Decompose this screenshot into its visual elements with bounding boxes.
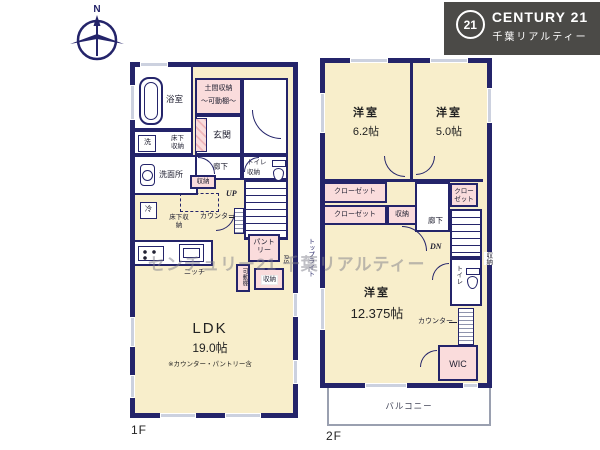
entry-porch [242, 78, 288, 155]
ldk-note-label: ※カウンター・パントリー含 [150, 358, 270, 368]
bedroom2-size-label: 5.0帖 [413, 123, 485, 139]
century21-badge-icon: 21 [456, 10, 485, 39]
floorplan-image: N 21 CENTURY 21 千葉リアルティー 浴室 洗 床下収納 [0, 0, 600, 450]
room-bedroom3: 洋室 12.375帖 [332, 284, 422, 322]
floor1-plan: 浴室 洗 床下収納 洗面所 土間収納 ～可動棚～ 玄関 [130, 62, 298, 418]
room-bedroom1: 洋室 6.2帖 [324, 104, 408, 139]
window [130, 317, 135, 347]
floor1-label: 1F [131, 423, 147, 437]
counter-label-2f: カウンター [418, 318, 453, 326]
bedroom1-size-label: 6.2帖 [324, 123, 408, 139]
window [225, 413, 261, 418]
bathtub-inner [144, 82, 158, 120]
window [463, 383, 478, 388]
room-entrance-label: 玄関 [213, 130, 231, 141]
closet-a-label: クローゼット [325, 188, 385, 196]
window [130, 375, 135, 398]
sink-bowl [142, 170, 153, 181]
compass-icon: N [62, 6, 132, 64]
bedroom1-door-arc [384, 156, 405, 177]
wic-label: WIC [440, 359, 476, 370]
window [160, 413, 196, 418]
washer-label: 洗 [144, 139, 151, 147]
window [350, 58, 388, 63]
brand-name: CENTURY 21 [492, 9, 588, 25]
floor2-label: 2F [326, 429, 342, 443]
room-closet-b: クローゼット [323, 205, 387, 225]
stairs-up-label: UP [226, 189, 237, 199]
room-laundry: 洗 床下収納 [133, 130, 193, 155]
stairs-1f [244, 180, 288, 240]
counter-pointer-2f [449, 322, 457, 323]
window [320, 288, 325, 330]
toilet-door-arc-2f [432, 263, 449, 280]
balcony: バルコニー [327, 388, 491, 426]
closet-c-label: クローゼット [454, 188, 474, 204]
toilet-tank [272, 160, 286, 167]
bedroom3-name-label: 洋室 [332, 284, 422, 300]
sink-icon [140, 164, 155, 186]
room-center-storage: 収納 [387, 205, 417, 225]
toilet-2f-label: トイレ [454, 265, 462, 285]
brand-text-block: CENTURY 21 千葉リアルティー [492, 9, 588, 43]
bedroom3-size-label: 12.375帖 [332, 303, 422, 322]
underfloor-storage-a-label: 床下収納 [171, 135, 187, 151]
room-wic: WIC [438, 345, 478, 381]
window [293, 293, 298, 317]
bedroom2-door-arc [416, 156, 435, 175]
underfloor-hatch-box [180, 193, 219, 212]
floor2-plan: 洋室 6.2帖 洋室 5.0帖 クローゼット クローゼット 収納 廊下 クローゼ… [320, 58, 492, 388]
room-bathroom-label: 浴室 [166, 94, 183, 104]
window [430, 58, 468, 63]
hallway-1f-label: 廊下 [213, 162, 228, 171]
room-washroom-label: 洗面所 [159, 170, 183, 180]
doma-shelf-label: ～可動棚～ [197, 98, 240, 106]
counter-hatch-1f [234, 208, 244, 234]
brand-subtitle: 千葉リアルティー [492, 28, 587, 43]
entrance-door-arc [252, 110, 281, 139]
bathtub-icon [139, 77, 163, 125]
wall-segment [323, 179, 483, 182]
compass-north-label: N [93, 4, 100, 15]
hall-storage-label: 収納 [192, 178, 214, 186]
doma-storage-label: 土間収納 [197, 85, 240, 93]
wic-door-arc [420, 350, 437, 367]
bedroom1-name-label: 洋室 [324, 104, 408, 120]
watermark: センチュリー21 千葉リアルティー [148, 250, 425, 275]
hallway-2f-label: 廊下 [428, 216, 443, 225]
stairs-down-label: DN [430, 242, 442, 252]
side-storage-label: 収納 [484, 252, 492, 265]
room-bathroom: 浴室 [133, 65, 193, 130]
room-hall-storage: 収納 [190, 175, 216, 189]
toilet-icon-2f [466, 268, 478, 289]
room-closet-c: クローゼット [450, 183, 478, 207]
window [487, 88, 492, 123]
fridge-label: 冷 [145, 206, 152, 214]
room-bedroom2: 洋室 5.0帖 [413, 104, 485, 139]
window [130, 85, 135, 120]
room-ldk: LDK 19.0帖 ※カウンター・パントリー含 [150, 320, 270, 368]
window [293, 360, 298, 384]
room-doma-storage: 土間収納 ～可動棚～ [195, 78, 242, 115]
window [365, 383, 407, 388]
ldk-size-label: 19.0帖 [150, 339, 270, 356]
toilet-icon-1f [272, 160, 284, 181]
room-toilet-2f: トイレ [450, 258, 482, 306]
counter-pointer-1f [229, 217, 235, 218]
stairs-2f [450, 209, 482, 258]
underfloor-storage-b-label: 床下収納 [168, 214, 190, 230]
bedroom2-name-label: 洋室 [413, 104, 485, 120]
counter-hatch-2f [458, 308, 474, 345]
balcony-label: バルコニー [385, 400, 432, 412]
brand-logo: 21 CENTURY 21 千葉リアルティー [444, 2, 600, 55]
toilet-tank [466, 268, 480, 275]
entrance-step [195, 118, 207, 152]
pantry-storage-label: 収納 [261, 275, 278, 285]
room-closet-a: クローゼット [323, 182, 387, 203]
window [140, 62, 168, 67]
room-washroom: 洗面所 [133, 155, 198, 195]
center-storage-label: 収納 [389, 211, 415, 219]
closet-b-label: クローゼット [325, 211, 385, 219]
ldk-name-label: LDK [150, 320, 270, 337]
window [320, 93, 325, 133]
toilet-bowl [467, 276, 478, 289]
